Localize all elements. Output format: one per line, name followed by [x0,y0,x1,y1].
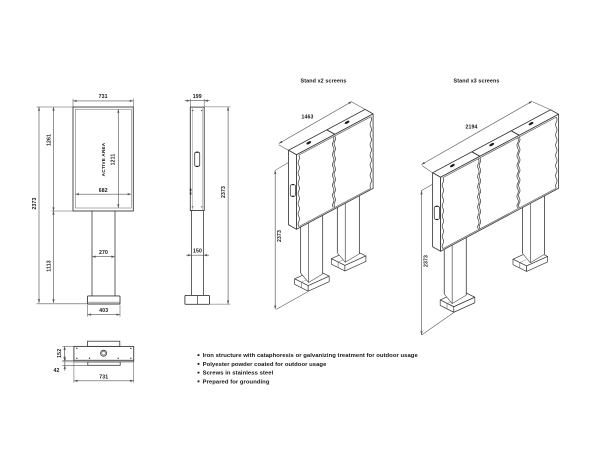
svg-text:1463: 1463 [301,115,313,121]
svg-text:2194: 2194 [465,125,477,131]
svg-text:2373: 2373 [277,230,283,242]
svg-text:731: 731 [99,374,108,380]
svg-text:Stand x3 screens: Stand x3 screens [454,79,500,85]
svg-text:2373: 2373 [221,186,227,198]
svg-text:Screws in stainless steel: Screws in stainless steel [203,371,274,377]
svg-text:42: 42 [53,368,59,374]
svg-text:682: 682 [99,188,108,194]
svg-text:Prepared for grounding: Prepared for grounding [203,379,270,385]
svg-text:Iron structure with cataphores: Iron structure with cataphoresis or galv… [203,353,419,359]
svg-text:ACTIVE AREA: ACTIVE AREA [101,142,107,176]
svg-text:199: 199 [193,94,202,100]
svg-text:150: 150 [193,249,202,255]
svg-text:403: 403 [99,308,108,314]
svg-text:1211: 1211 [111,154,117,166]
svg-text:Polyester powder coated for ou: Polyester powder coated for outdoor usag… [203,362,327,368]
svg-text:Stand x2 screens: Stand x2 screens [301,79,347,85]
svg-text:731: 731 [99,94,108,100]
svg-text:1261: 1261 [46,134,52,146]
svg-text:2373: 2373 [424,255,430,267]
svg-text:270: 270 [99,250,108,256]
svg-text:2373: 2373 [32,197,38,209]
svg-text:152: 152 [57,349,63,358]
svg-text:1113: 1113 [46,260,52,271]
